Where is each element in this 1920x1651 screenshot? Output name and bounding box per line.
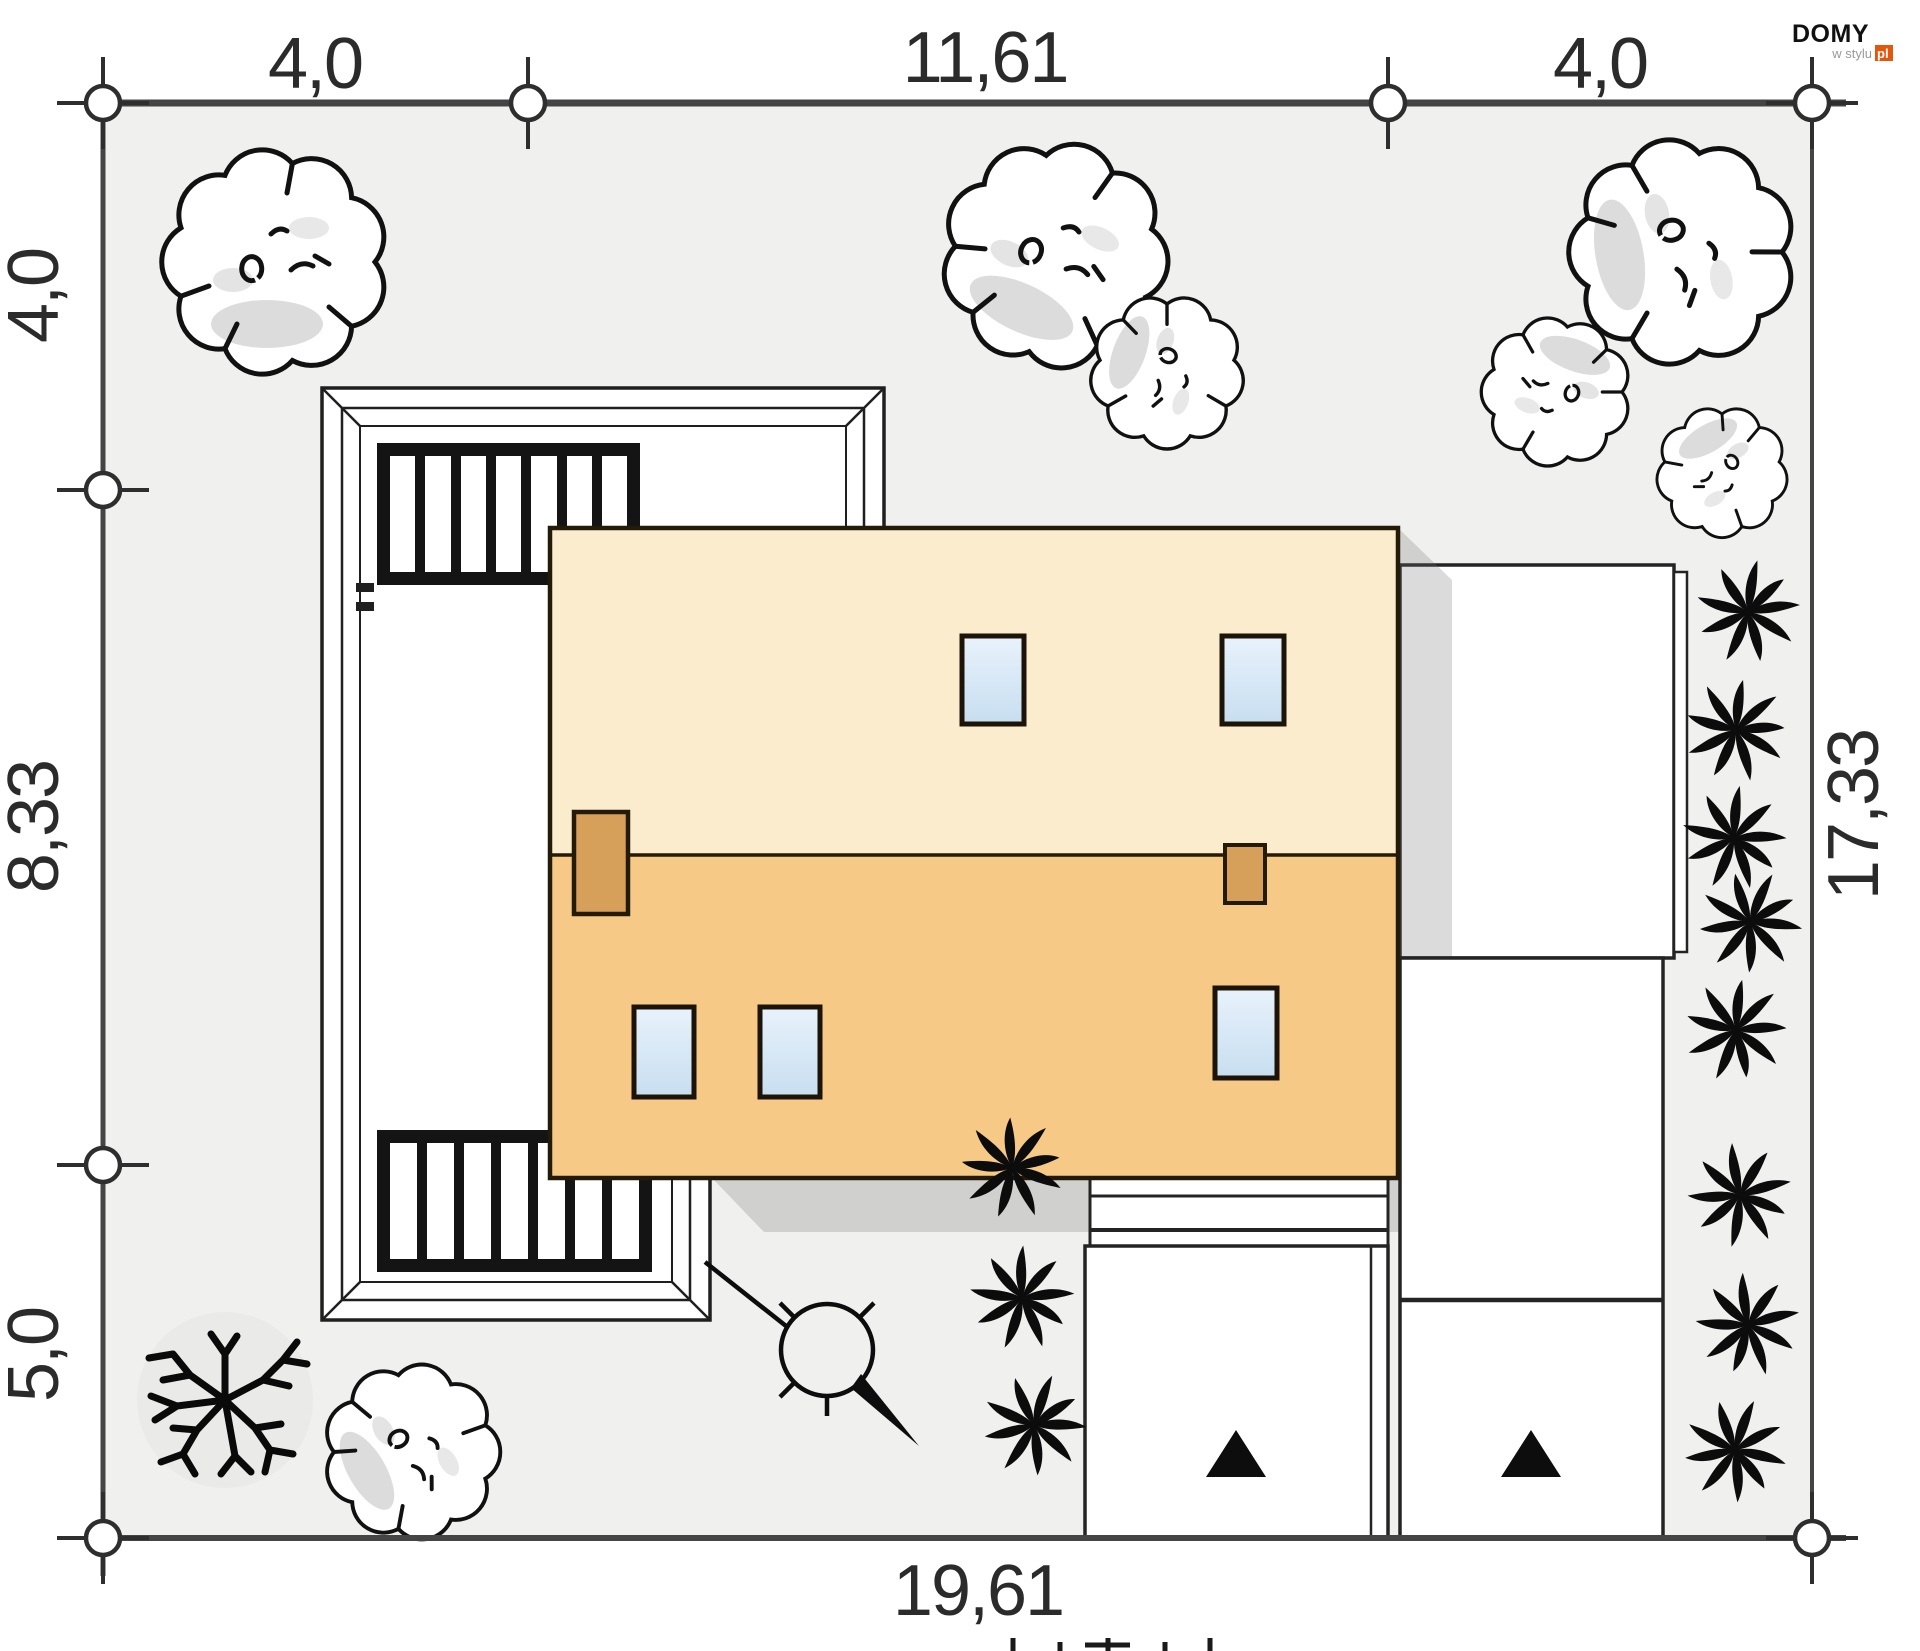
dim-left-bottom: 5,0 (0, 1308, 74, 1402)
survey-marker (1795, 86, 1829, 120)
dim-left-middle: 8,33 (0, 761, 74, 893)
roof-window (1222, 636, 1284, 724)
roof-window (634, 1007, 694, 1097)
roof-window (760, 1007, 820, 1097)
survey-marker (1795, 1521, 1829, 1555)
garage-wing-gutter (1674, 572, 1687, 952)
chimney (1225, 845, 1265, 903)
roof-window (962, 636, 1024, 724)
roof-window (1215, 988, 1277, 1078)
logo-tld-text: pl (1877, 46, 1889, 61)
survey-marker (511, 86, 545, 120)
dim-top-middle: 11,61 (903, 18, 1068, 98)
site-plan-drawing: 4,0 11,61 4,0 4,0 8,33 5,0 17,33 19,61 D… (0, 0, 1920, 1651)
chimney (574, 812, 628, 914)
survey-marker (86, 1148, 120, 1182)
driveway-right (1400, 958, 1663, 1538)
bare-tree-icon (137, 1312, 313, 1488)
logo-brand-text: DOMY (1792, 20, 1869, 48)
survey-marker (86, 86, 120, 120)
dim-right: 17,33 (1814, 730, 1894, 900)
logo-tagline-text: w stylu (1831, 46, 1872, 61)
survey-marker (1371, 86, 1405, 120)
dim-left-top: 4,0 (0, 249, 74, 343)
deciduous-tree-icon (162, 150, 384, 374)
dim-top-right: 4,0 (1553, 24, 1647, 104)
survey-marker (86, 473, 120, 507)
entrance-stoop (1090, 1180, 1388, 1246)
driveway-left (1085, 1246, 1388, 1538)
site-plan-page: 4,0 11,61 4,0 4,0 8,33 5,0 17,33 19,61 D… (0, 0, 1920, 1651)
dim-top-left: 4,0 (268, 24, 362, 104)
survey-marker (86, 1521, 120, 1555)
house-roof (550, 528, 1398, 1178)
dim-bottom: 19,61 (893, 1551, 1063, 1631)
